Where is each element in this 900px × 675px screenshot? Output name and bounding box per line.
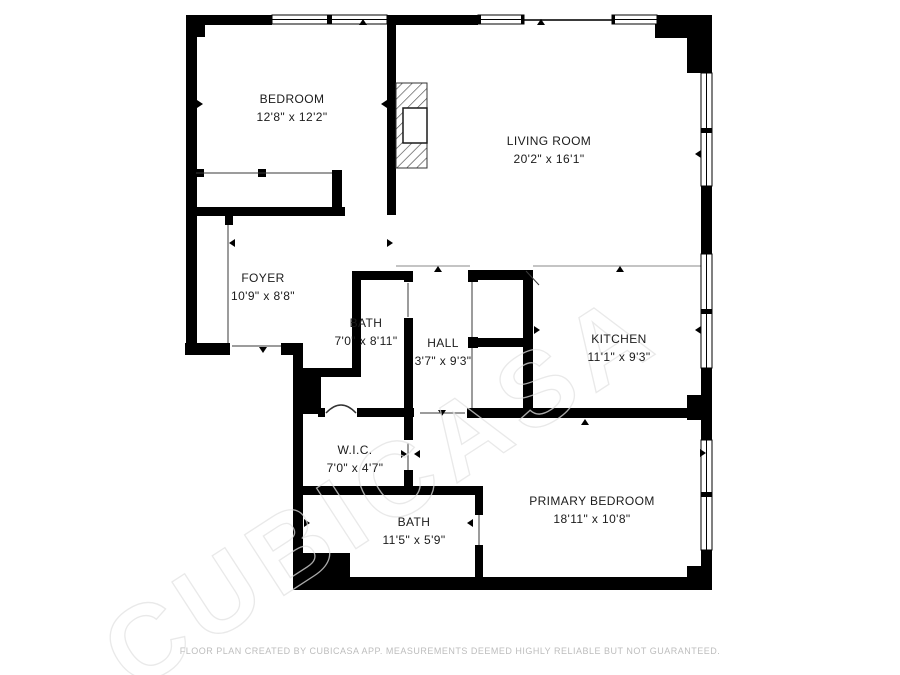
room-name: BATH — [334, 314, 397, 332]
room-label-bath: BATH 7'0" x 8'11" — [334, 314, 397, 350]
window-kitchen-right — [701, 254, 712, 368]
window-living-b — [612, 15, 657, 24]
room-name: HALL — [415, 334, 472, 352]
room-label-living-room: LIVING ROOM 20'2" x 16'1" — [507, 132, 591, 168]
window-living-a — [478, 15, 524, 24]
footer-disclaimer: FLOOR PLAN CREATED BY CUBICASA APP. MEAS… — [0, 646, 900, 656]
room-dimensions: 11'5" x 5'9" — [382, 531, 445, 549]
room-name: BATH — [382, 513, 445, 531]
window-living-right — [701, 73, 712, 186]
room-dimensions: 20'2" x 16'1" — [507, 150, 591, 168]
floor-plan-page: CUBICASA BEDROOM 12'8" x 12'2" LIVING RO… — [0, 0, 900, 675]
room-dimensions: 7'0" x 8'11" — [334, 332, 397, 350]
room-label-primary-bedroom: PRIMARY BEDROOM 18'11" x 10'8" — [529, 492, 655, 528]
room-dimensions: 7'0" x 4'7" — [327, 459, 384, 477]
room-label-wic: W.I.C. 7'0" x 4'7" — [327, 441, 384, 477]
room-dimensions: 12'8" x 12'2" — [256, 108, 327, 126]
window-bedroom — [272, 15, 387, 24]
room-dimensions: 10'9" x 8'8" — [231, 287, 295, 305]
room-name: PRIMARY BEDROOM — [529, 492, 655, 510]
door-arc — [326, 405, 356, 413]
room-label-kitchen: KITCHEN 11'1" x 9'3" — [587, 330, 650, 366]
fireplace-icon — [396, 83, 427, 168]
room-dimensions: 18'11" x 10'8" — [529, 510, 655, 528]
room-label-hall: HALL 3'7" x 9'3" — [415, 334, 472, 370]
room-label-bedroom: BEDROOM 12'8" x 12'2" — [256, 90, 327, 126]
room-name: FOYER — [231, 269, 295, 287]
room-label-bath-2: BATH 11'5" x 5'9" — [382, 513, 445, 549]
room-label-foyer: FOYER 10'9" x 8'8" — [231, 269, 295, 305]
room-name: KITCHEN — [587, 330, 650, 348]
room-name: W.I.C. — [327, 441, 384, 459]
room-dimensions: 11'1" x 9'3" — [587, 348, 650, 366]
window-primary-right — [701, 440, 712, 550]
room-dimensions: 3'7" x 9'3" — [415, 352, 472, 370]
room-name: BEDROOM — [256, 90, 327, 108]
room-name: LIVING ROOM — [507, 132, 591, 150]
